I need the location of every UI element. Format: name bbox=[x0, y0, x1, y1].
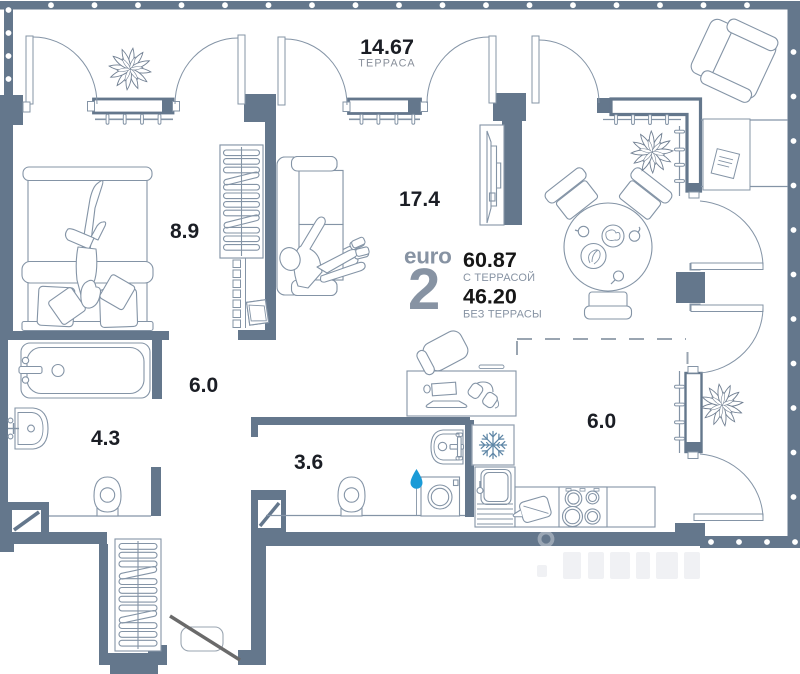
svg-text:46.20: 46.20 bbox=[463, 285, 517, 309]
svg-text:60.87: 60.87 bbox=[463, 248, 517, 272]
svg-text:3.6: 3.6 bbox=[294, 451, 323, 474]
svg-text:8.9: 8.9 bbox=[170, 220, 199, 243]
svg-text:БЕЗ ТЕРРАСЫ: БЕЗ ТЕРРАСЫ bbox=[463, 309, 542, 321]
svg-text:ТЕРРАСА: ТЕРРАСА bbox=[358, 58, 416, 70]
svg-text:С ТЕРРАСОЙ: С ТЕРРАСОЙ bbox=[463, 271, 535, 284]
svg-text:6.0: 6.0 bbox=[189, 374, 218, 397]
svg-text:17.4: 17.4 bbox=[399, 188, 440, 211]
svg-text:4.3: 4.3 bbox=[91, 427, 120, 450]
svg-text:14.67: 14.67 bbox=[360, 35, 414, 59]
svg-text:6.0: 6.0 bbox=[587, 410, 616, 433]
svg-text:2: 2 bbox=[408, 257, 440, 322]
